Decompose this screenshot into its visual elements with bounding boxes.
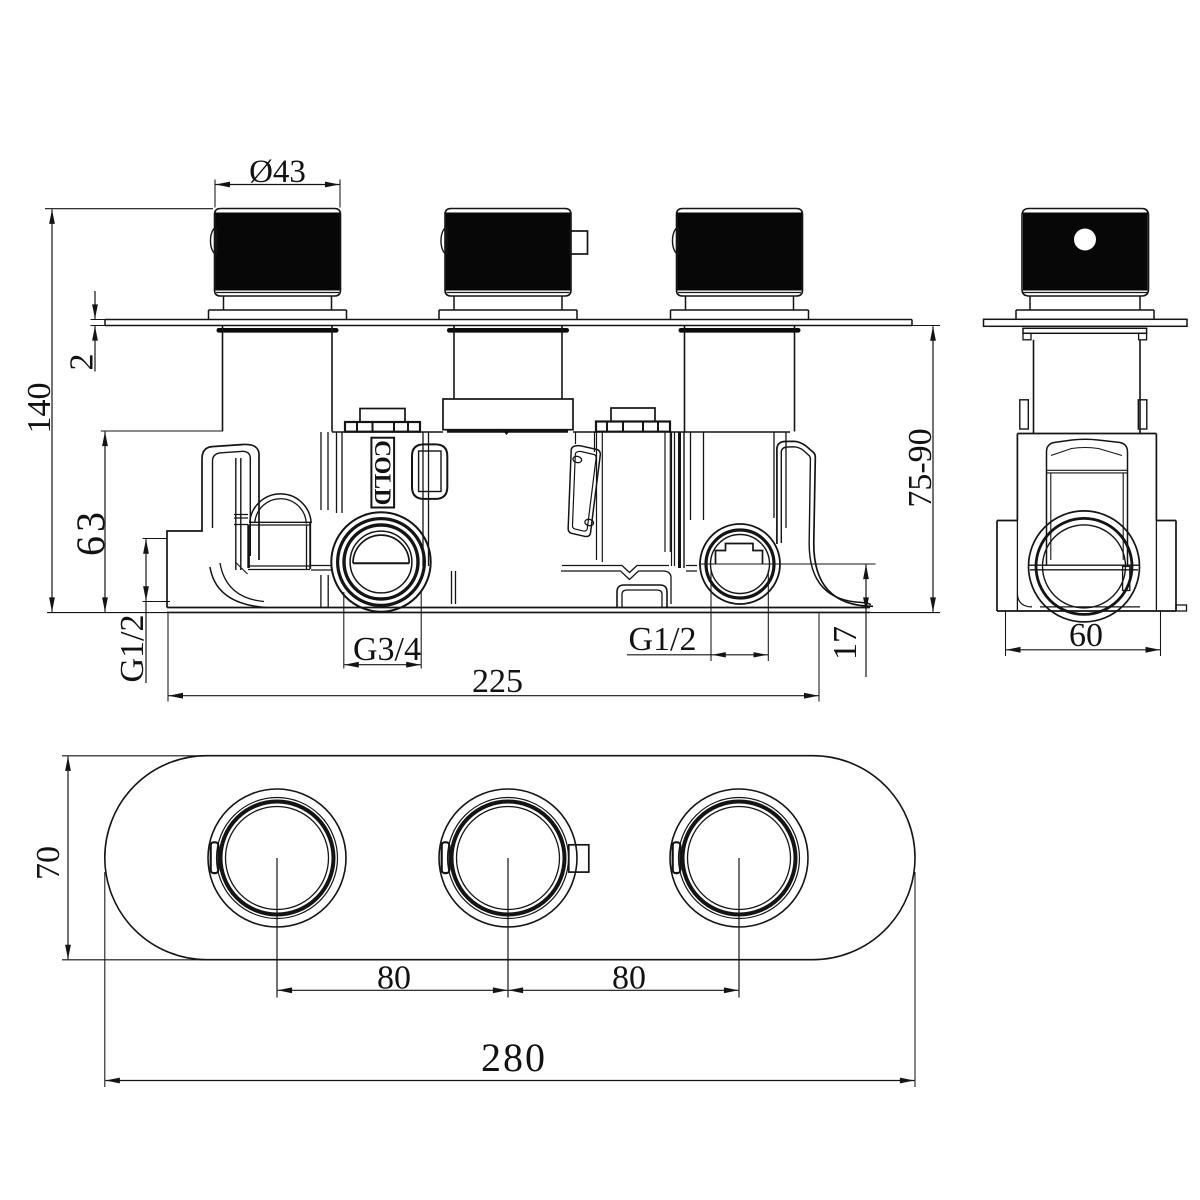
svg-text:70: 70 (30, 846, 67, 880)
svg-text:2: 2 (64, 354, 101, 371)
svg-text:80: 80 (377, 960, 411, 997)
svg-text:63: 63 (68, 508, 113, 556)
svg-text:G1/2: G1/2 (114, 615, 151, 683)
svg-text:Ø43: Ø43 (249, 154, 306, 190)
svg-text:80: 80 (612, 960, 646, 997)
svg-text:17: 17 (827, 626, 864, 660)
svg-text:280: 280 (481, 1035, 547, 1080)
svg-text:G3/4: G3/4 (353, 631, 421, 668)
svg-text:140: 140 (21, 383, 58, 434)
svg-text:60: 60 (1069, 617, 1103, 654)
svg-text:225: 225 (472, 663, 523, 700)
svg-text:G1/2: G1/2 (629, 621, 697, 658)
svg-text:75-90: 75-90 (902, 428, 939, 507)
svg-text:COLD: COLD (370, 440, 395, 504)
